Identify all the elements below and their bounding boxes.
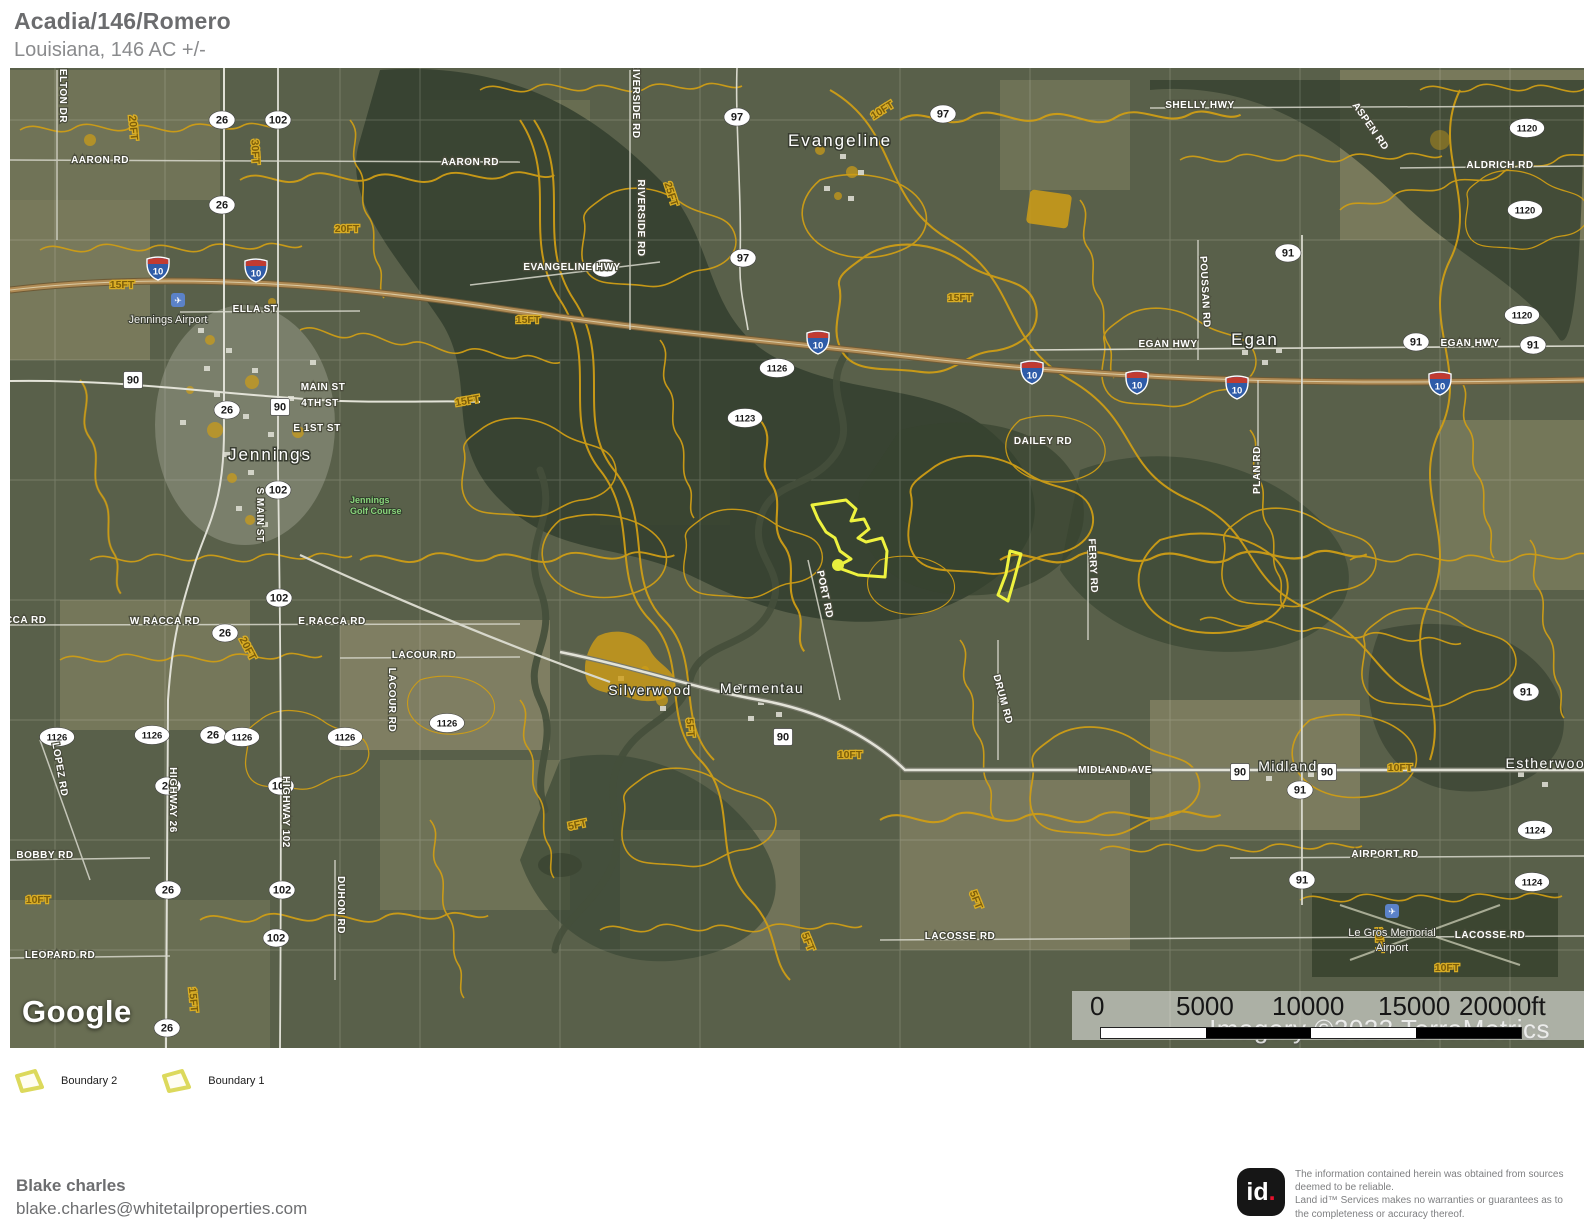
agent-name: Blake charles [16, 1176, 307, 1196]
boundary-infill [832, 559, 844, 571]
page-title: Acadia/146/Romero [14, 8, 231, 35]
svg-text:HIGHWAY 102: HIGHWAY 102 [280, 776, 291, 848]
scale-tick: 15000 [1378, 991, 1450, 1022]
poi-label-legros-line1: Le Gros Memorial [1348, 927, 1435, 939]
svg-text:ELTON DR: ELTON DR [57, 69, 68, 123]
svg-text:RIVERSIDE RD: RIVERSIDE RD [630, 68, 641, 139]
svg-text:LACOSSE RD: LACOSSE RD [925, 931, 996, 942]
disclaimer-line2: Land id™ Services makes no warranties or… [1295, 1194, 1577, 1220]
svg-text:20FT: 20FT [126, 115, 140, 141]
poi-label-golf-line1: Jennings [350, 495, 390, 505]
legend-item-boundary-2: Boundary 2 [12, 1068, 117, 1094]
agent-email: blake.charles@whitetailproperties.com [16, 1199, 307, 1219]
svg-text:10: 10 [251, 269, 262, 280]
svg-text:S MAIN ST: S MAIN ST [254, 487, 265, 542]
scale-bar-segments [1100, 1027, 1522, 1039]
svg-text:91: 91 [1527, 340, 1539, 352]
svg-text:26: 26 [162, 885, 174, 897]
svg-text:ELLA ST: ELLA ST [233, 304, 278, 315]
svg-text:AARON RD: AARON RD [71, 155, 129, 166]
scale-tick: 5000 [1176, 991, 1234, 1022]
svg-text:RIVERSIDE RD: RIVERSIDE RD [635, 179, 646, 256]
map-canvas: ✈ [10, 68, 1584, 1048]
svg-text:90: 90 [1321, 767, 1333, 779]
svg-text:E 1ST ST: E 1ST ST [293, 423, 340, 434]
svg-text:DUHON RD: DUHON RD [335, 876, 346, 934]
svg-text:91: 91 [1282, 248, 1294, 260]
city-label-egan: Egan [1231, 330, 1279, 349]
svg-text:LACOUR RD: LACOUR RD [386, 668, 397, 733]
boundary-polygon-icon [12, 1068, 46, 1094]
disclaimer-line1: The information contained herein was obt… [1295, 1168, 1577, 1194]
scale-tick: 20000ft [1459, 991, 1546, 1022]
landid-logo: id. [1237, 1168, 1285, 1216]
svg-text:4TH ST: 4TH ST [301, 398, 338, 409]
airport-icon [171, 293, 185, 307]
svg-text:AARON RD: AARON RD [441, 157, 499, 168]
scale-tick: 10000 [1272, 991, 1344, 1022]
boundary-polygon-icon [159, 1068, 193, 1094]
svg-text:10: 10 [1132, 381, 1143, 392]
map-art: ✈ [10, 68, 1584, 1048]
legend-label: Boundary 2 [61, 1075, 117, 1087]
svg-text:1124: 1124 [1522, 878, 1543, 889]
svg-text:MAIN ST: MAIN ST [301, 382, 346, 393]
svg-text:102: 102 [269, 115, 287, 127]
svg-text:EGAN HWY: EGAN HWY [1441, 338, 1500, 349]
svg-text:EGAN HWY: EGAN HWY [1139, 339, 1198, 350]
svg-text:AIRPORT RD: AIRPORT RD [1351, 849, 1418, 860]
svg-text:26: 26 [219, 628, 231, 640]
svg-text:5FT: 5FT [683, 718, 697, 738]
svg-text:10: 10 [153, 267, 164, 278]
svg-text:26: 26 [216, 200, 228, 212]
svg-text:10FT: 10FT [1388, 762, 1413, 774]
svg-text:90: 90 [777, 732, 789, 744]
svg-text:15FT: 15FT [186, 987, 200, 1013]
svg-text:SHELLY HWY: SHELLY HWY [1165, 100, 1234, 111]
city-label-silverwood: Silverwood [608, 682, 691, 698]
header: Acadia/146/Romero Louisiana, 146 AC +/- [14, 8, 231, 62]
city-label-midland: Midland [1258, 758, 1318, 774]
svg-text:91: 91 [1296, 875, 1308, 887]
svg-text:90: 90 [274, 402, 286, 414]
svg-text:PLAN RD: PLAN RD [1252, 446, 1263, 494]
svg-text:MIDLAND AVE: MIDLAND AVE [1078, 765, 1152, 776]
city-label-mermentau: Mermentau [720, 680, 804, 696]
svg-text:RACCA RD: RACCA RD [10, 615, 46, 626]
svg-text:10FT: 10FT [26, 894, 51, 906]
svg-text:97: 97 [731, 112, 743, 124]
landid-logo-dot: . [1269, 1178, 1276, 1207]
svg-text:10FT: 10FT [1435, 962, 1460, 974]
svg-text:26: 26 [161, 1023, 173, 1035]
svg-text:10: 10 [1232, 386, 1243, 397]
disclaimer: id. The information contained herein was… [1237, 1168, 1577, 1221]
svg-text:1126: 1126 [232, 733, 253, 744]
svg-text:EVANGELINE HWY: EVANGELINE HWY [523, 262, 620, 273]
scale-tick: 0 [1090, 991, 1104, 1022]
landid-logo-text: id [1246, 1178, 1268, 1207]
google-logo: Google [22, 994, 132, 1030]
city-label-jennings: Jennings [228, 445, 312, 464]
svg-text:102: 102 [269, 485, 287, 497]
svg-text:HIGHWAY 26: HIGHWAY 26 [167, 767, 178, 833]
scale-bar: 0 5000 10000 15000 20000ft [1072, 991, 1584, 1040]
svg-text:1123: 1123 [735, 414, 756, 425]
svg-text:BOBBY RD: BOBBY RD [16, 850, 73, 861]
disclaimer-text: The information contained herein was obt… [1295, 1168, 1577, 1221]
svg-text:102: 102 [270, 593, 288, 605]
airport-icon [1385, 904, 1399, 918]
poi-label-jennings-airport: Jennings Airport [129, 314, 208, 326]
svg-text:10: 10 [813, 341, 824, 352]
legend: Boundary 2 Boundary 1 [12, 1068, 307, 1094]
svg-text:20FT: 20FT [335, 223, 360, 235]
poi-label-legros-line2: Airport [1376, 942, 1408, 954]
svg-text:91: 91 [1520, 687, 1532, 699]
svg-text:DAILEY RD: DAILEY RD [1014, 436, 1072, 447]
svg-text:LACOUR RD: LACOUR RD [392, 650, 457, 661]
map-export-page: { "header": { "title": "Acadia/146/Romer… [0, 0, 1584, 1224]
poi-label-golf-line2: Golf Course [350, 506, 402, 516]
svg-text:1120: 1120 [1517, 124, 1538, 135]
svg-text:1120: 1120 [1512, 311, 1533, 322]
svg-text:26: 26 [207, 730, 219, 742]
svg-text:90: 90 [1234, 767, 1246, 779]
svg-text:10: 10 [1027, 371, 1038, 382]
svg-text:ALDRICH RD: ALDRICH RD [1466, 160, 1533, 171]
svg-text:26: 26 [216, 115, 228, 127]
city-label-evangeline: Evangeline [788, 131, 892, 150]
svg-text:10FT: 10FT [838, 749, 863, 761]
svg-text:91: 91 [1294, 785, 1306, 797]
svg-text:15FT: 15FT [516, 314, 541, 326]
svg-text:97: 97 [737, 253, 749, 265]
legend-item-boundary-1: Boundary 1 [159, 1068, 264, 1094]
svg-text:15FT: 15FT [948, 292, 973, 304]
svg-text:1126: 1126 [335, 733, 356, 744]
legend-label: Boundary 1 [208, 1075, 264, 1087]
svg-text:1120: 1120 [1515, 206, 1536, 217]
svg-text:30FT: 30FT [248, 139, 261, 165]
svg-text:97: 97 [937, 109, 949, 121]
svg-text:E RACCA RD: E RACCA RD [298, 616, 365, 627]
svg-text:1126: 1126 [767, 364, 788, 375]
svg-text:102: 102 [273, 885, 291, 897]
svg-text:1124: 1124 [1525, 826, 1546, 837]
svg-text:10: 10 [1435, 382, 1446, 393]
svg-text:26: 26 [221, 405, 233, 417]
svg-text:90: 90 [127, 375, 139, 387]
page-subtitle: Louisiana, 146 AC +/- [14, 39, 231, 62]
svg-text:102: 102 [267, 933, 285, 945]
svg-text:1126: 1126 [437, 719, 458, 730]
svg-text:W RACCA RD: W RACCA RD [130, 616, 200, 627]
svg-text:LACOSSE RD: LACOSSE RD [1455, 930, 1526, 941]
svg-text:LEOPARD RD: LEOPARD RD [25, 950, 95, 961]
svg-text:15FT: 15FT [110, 279, 135, 291]
svg-text:91: 91 [1410, 337, 1422, 349]
city-label-estherwood: Estherwood [1506, 755, 1584, 771]
svg-text:1126: 1126 [142, 731, 163, 742]
footer-contact: Blake charles blake.charles@whitetailpro… [16, 1176, 307, 1219]
